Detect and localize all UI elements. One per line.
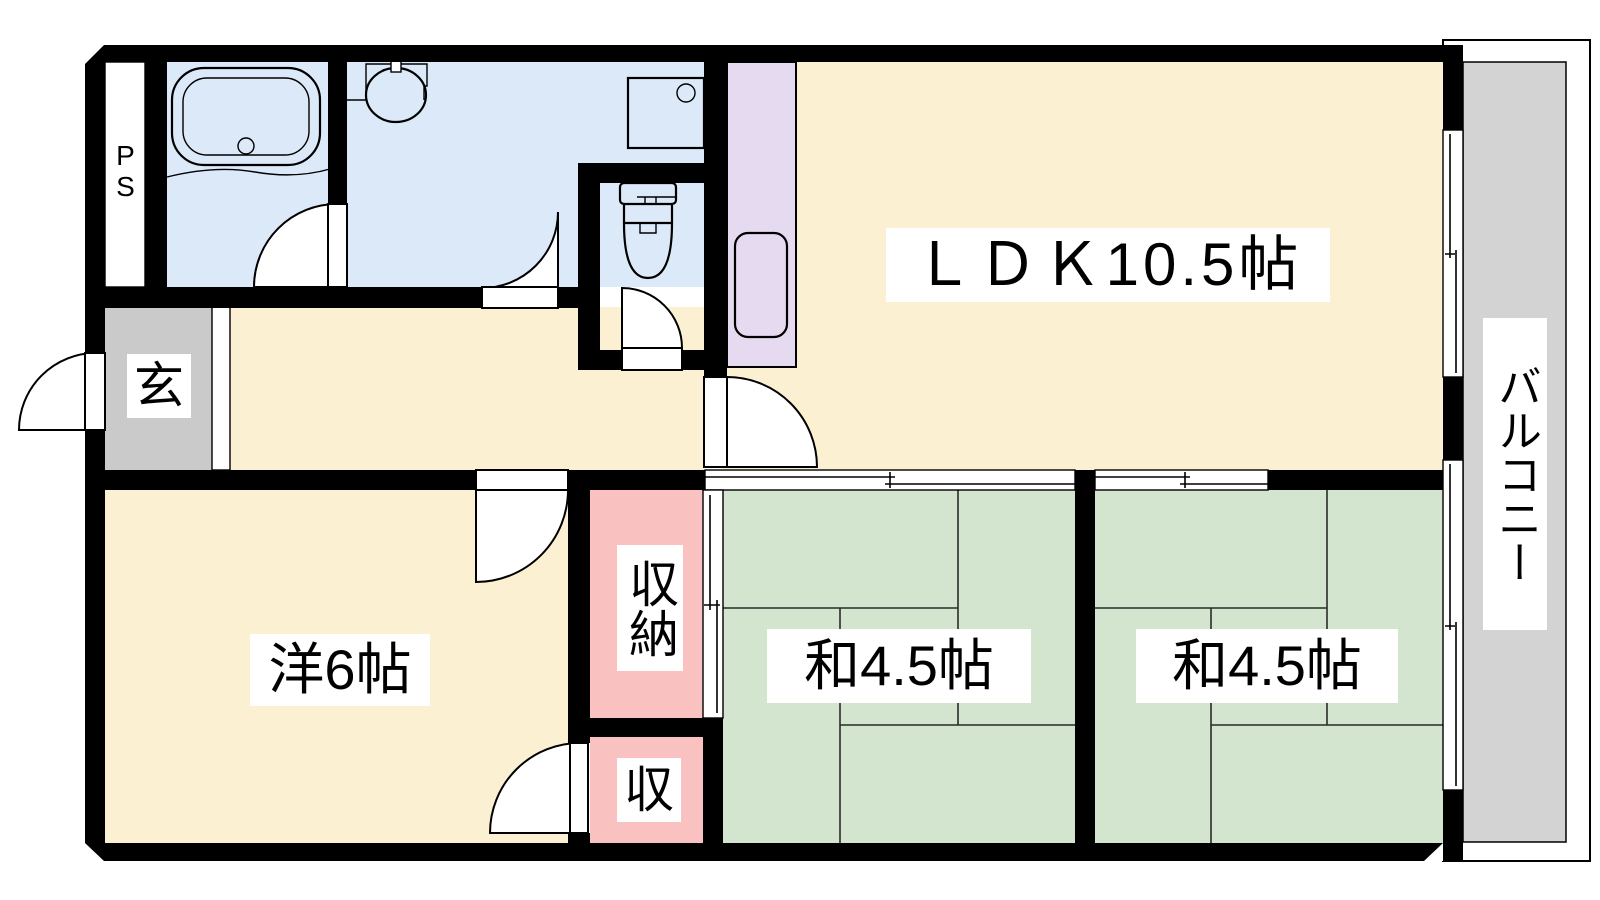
label-closet-large: 収納 — [617, 545, 683, 671]
floor-plan: ＬＤＫ10.5帖 洋6帖 和4.5帖 和4.5帖 収納 収 玄 PS バルコニー — [0, 0, 1600, 900]
entrance-door — [19, 353, 105, 430]
window-ldk-balcony — [1443, 130, 1463, 377]
label-entrance: 玄 — [127, 354, 191, 418]
window-tatami2-balcony — [1443, 460, 1463, 790]
sliding-door-tatami-1 — [705, 470, 1075, 490]
toilet-door — [622, 288, 682, 370]
label-pipe-space: PS — [106, 136, 144, 206]
floor-plan-drawing — [0, 0, 1600, 900]
label-western-room: 洋6帖 — [250, 634, 430, 706]
entrance-step — [212, 307, 230, 470]
sliding-door-closet-large — [703, 490, 723, 718]
sliding-door-tatami-2 — [1095, 470, 1268, 490]
label-balcony: バルコニー — [1483, 318, 1547, 630]
label-ldk: ＬＤＫ10.5帖 — [886, 228, 1330, 302]
label-closet-small: 収 — [617, 758, 681, 822]
label-tatami-room-2: 和4.5帖 — [1136, 629, 1398, 703]
kitchen-counter — [727, 62, 796, 367]
label-tatami-room-1: 和4.5帖 — [767, 629, 1031, 703]
